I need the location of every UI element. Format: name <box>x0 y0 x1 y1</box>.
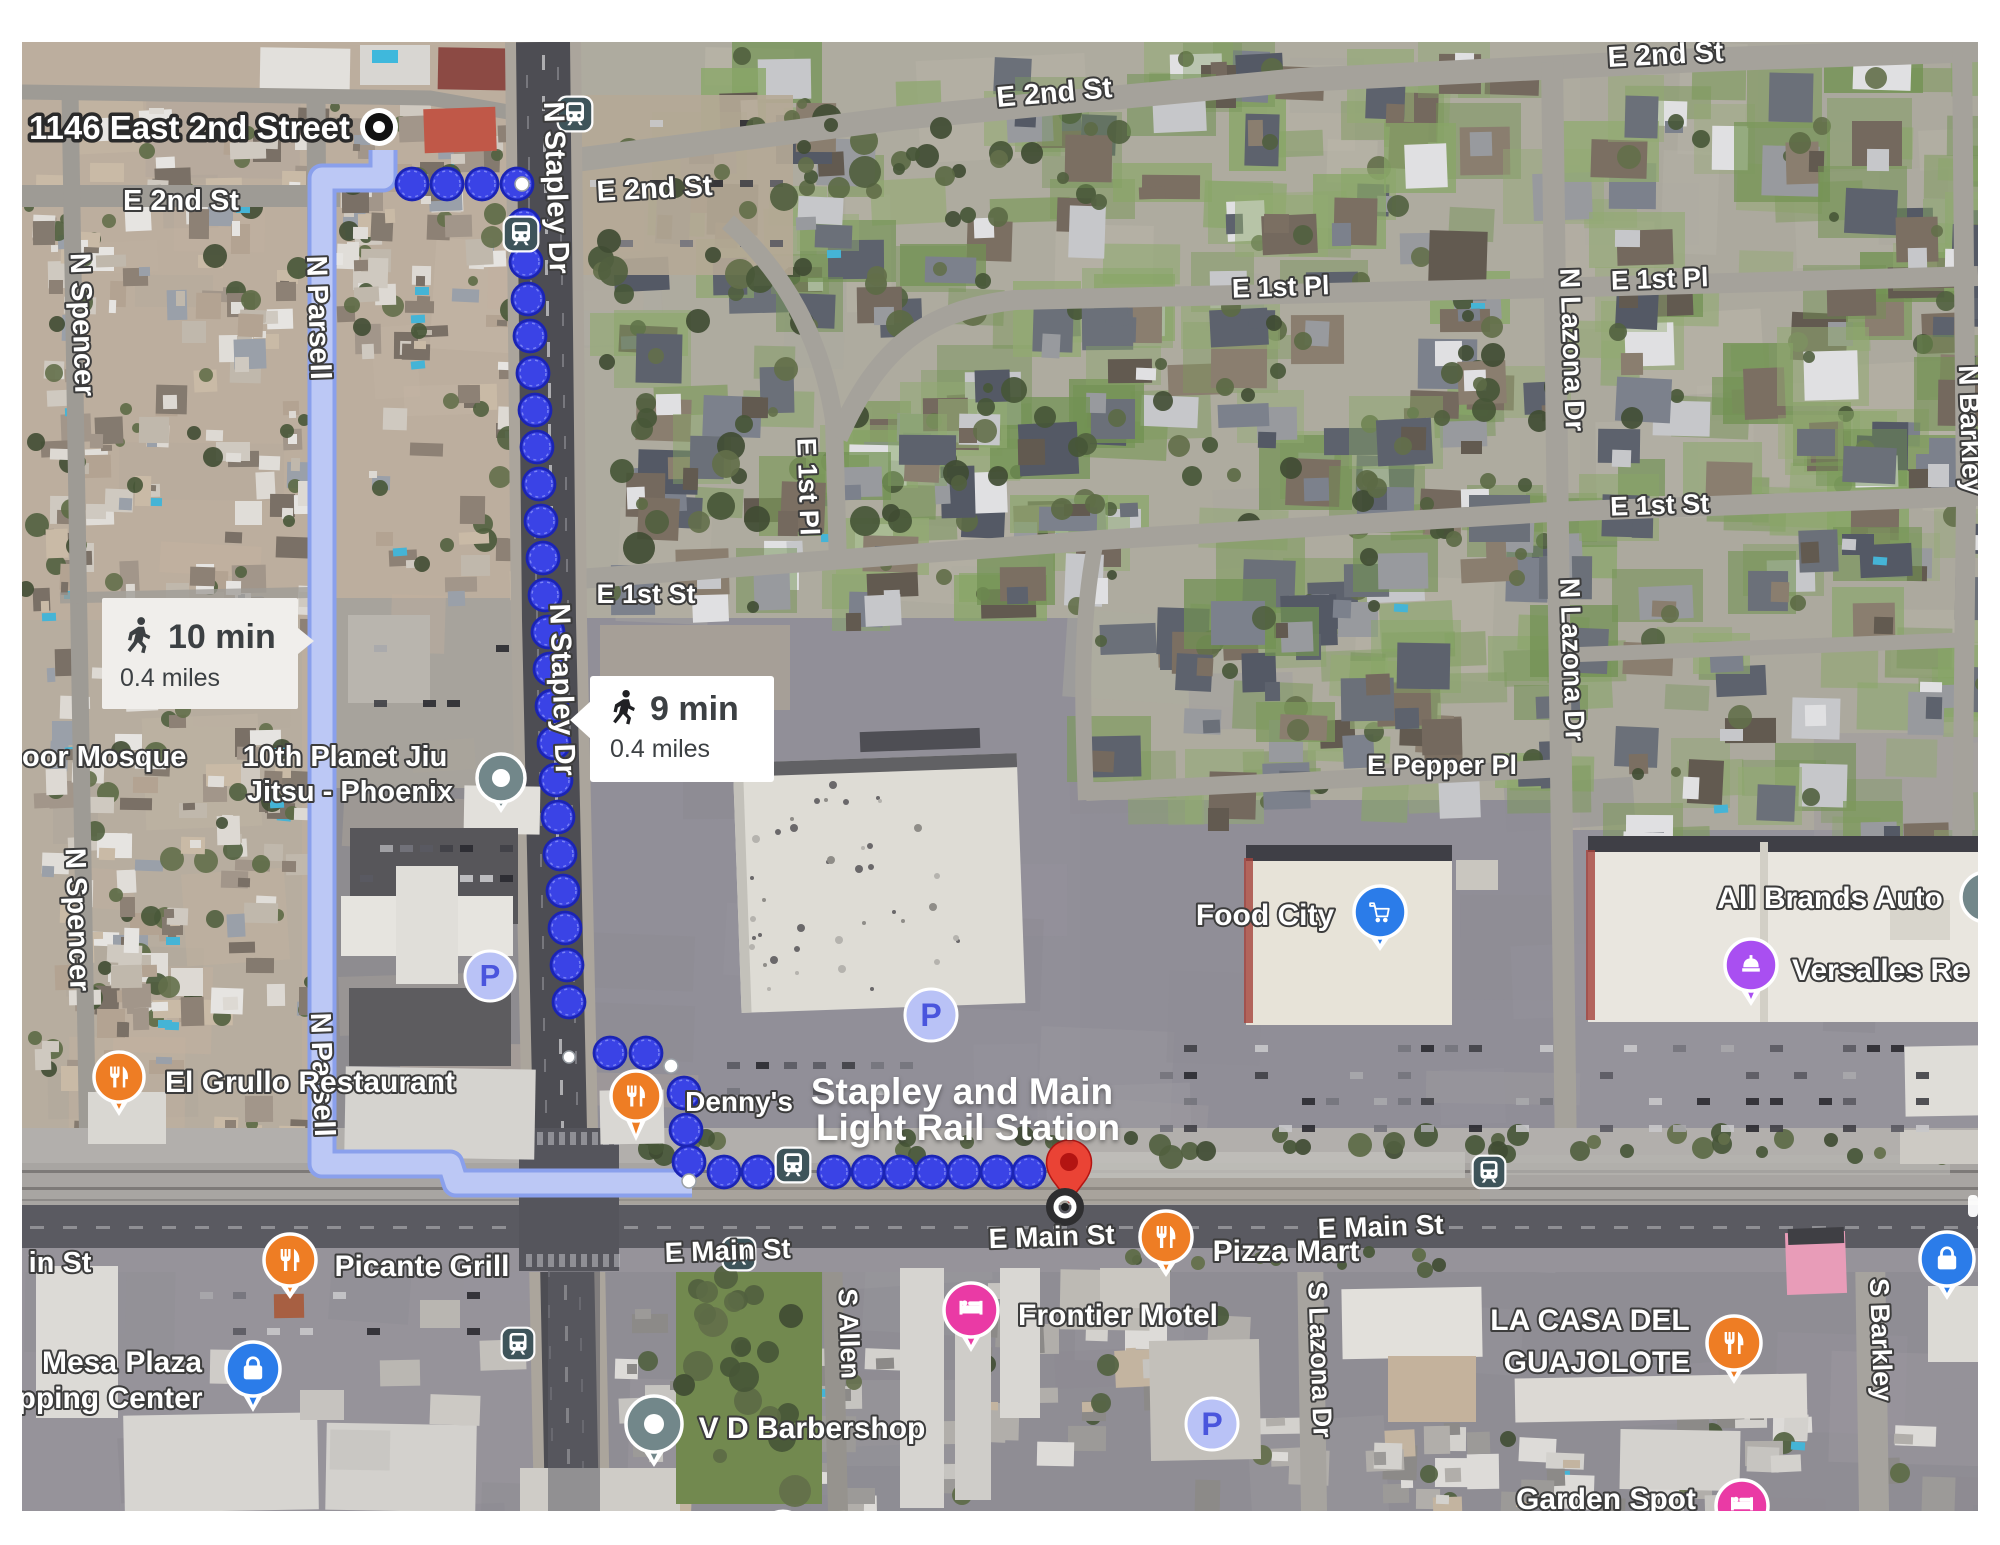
svg-text:E Pepper Pl: E Pepper Pl <box>1367 750 1517 780</box>
svg-text:P: P <box>920 997 941 1033</box>
svg-text:E 1st Pl: E 1st Pl <box>1610 262 1709 295</box>
svg-text:N Parsell: N Parsell <box>300 255 336 380</box>
svg-text:E 1st Pl: E 1st Pl <box>791 437 824 536</box>
svg-text:10th Planet Jiu: 10th Planet Jiu <box>243 741 448 773</box>
svg-text:Picante Grill: Picante Grill <box>334 1250 509 1283</box>
svg-text:LA CASA DEL: LA CASA DEL <box>1490 1304 1689 1337</box>
svg-text:9 min: 9 min <box>650 690 739 728</box>
svg-text:All Brands Auto: All Brands Auto <box>1717 882 1943 915</box>
svg-text:N Lazona Dr: N Lazona Dr <box>1554 267 1591 431</box>
svg-text:E Main St: E Main St <box>988 1219 1115 1254</box>
svg-text:N Spencer: N Spencer <box>59 847 96 991</box>
svg-text:in St: in St <box>29 1247 92 1279</box>
svg-text:El Grullo Restaurant: El Grullo Restaurant <box>165 1066 455 1099</box>
svg-text:S Lazona Dr: S Lazona Dr <box>1302 1281 1337 1438</box>
svg-text:Stapley and Main: Stapley and Main <box>811 1071 1113 1112</box>
svg-text:Jitsu - Phoenix: Jitsu - Phoenix <box>247 776 453 808</box>
svg-text:N Spencer: N Spencer <box>64 252 101 396</box>
svg-text:0.4 miles: 0.4 miles <box>120 664 220 692</box>
svg-text:E 2nd St: E 2nd St <box>123 185 239 217</box>
svg-text:S Allen: S Allen <box>832 1288 865 1380</box>
svg-text:1146 East 2nd Street: 1146 East 2nd Street <box>29 109 350 146</box>
svg-text:0.4 miles: 0.4 miles <box>610 735 710 763</box>
svg-text:E 1st Pl: E 1st Pl <box>1231 270 1330 303</box>
svg-text:oor Mosque: oor Mosque <box>22 741 186 773</box>
svg-text:E Main St: E Main St <box>664 1233 791 1268</box>
svg-text:Frontier Motel: Frontier Motel <box>1018 1299 1218 1332</box>
svg-text:10 min: 10 min <box>168 618 276 656</box>
svg-text:V D Barbershop: V D Barbershop <box>699 1412 926 1445</box>
svg-text:Food City: Food City <box>1196 899 1335 932</box>
svg-text:P: P <box>1201 1406 1222 1442</box>
svg-text:pping Center: pping Center <box>18 1382 203 1415</box>
svg-text:E 1st St: E 1st St <box>596 579 695 609</box>
svg-text:Light Rail Station: Light Rail Station <box>816 1107 1120 1148</box>
svg-text:Pizza Mart: Pizza Mart <box>1213 1235 1360 1268</box>
svg-text:E 2nd St: E 2nd St <box>596 170 714 208</box>
svg-text:N Lazona Dr: N Lazona Dr <box>1554 577 1591 741</box>
svg-text:Denny's: Denny's <box>685 1086 793 1117</box>
svg-text:N Stapley Dr: N Stapley Dr <box>543 603 581 776</box>
svg-text:N Stapley Dr: N Stapley Dr <box>537 101 575 274</box>
svg-text:GUAJOLOTE: GUAJOLOTE <box>1504 1346 1691 1379</box>
svg-text:P: P <box>480 958 501 993</box>
svg-text:S Barkley: S Barkley <box>1864 1278 1898 1402</box>
svg-text:Versalles Re: Versalles Re <box>1792 954 1969 987</box>
svg-text:Mesa Plaza: Mesa Plaza <box>42 1346 202 1379</box>
svg-text:E 1st St: E 1st St <box>1610 488 1710 521</box>
